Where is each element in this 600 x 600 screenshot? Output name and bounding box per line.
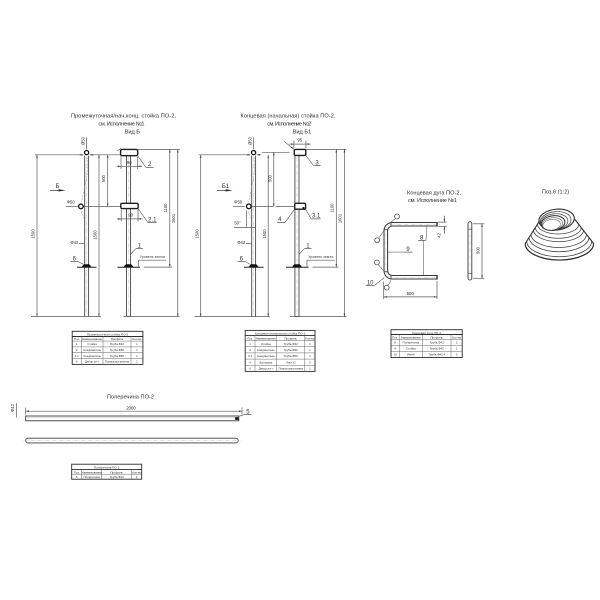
svg-text:Декор.эл-т: Декор.эл-т	[259, 367, 274, 371]
svg-text:Поз.: Поз.	[74, 470, 80, 474]
svg-text:Уровень земли: Уровень земли	[308, 255, 333, 259]
svg-text:Наименование: Наименование	[401, 336, 421, 340]
svg-text:Ф50: Ф50	[67, 200, 76, 205]
svg-text:Труба Ф42: Труба Ф42	[430, 341, 444, 345]
svg-text:Профиль: Профиль	[111, 337, 124, 341]
svg-text:1500: 1500	[194, 229, 199, 239]
svg-text:Поперечина ПО-2: Поперечина ПО-2	[94, 466, 120, 470]
svg-text:2.1: 2.1	[148, 217, 157, 223]
svg-text:Труба Ф42: Труба Ф42	[430, 347, 444, 351]
svg-text:1500: 1500	[31, 229, 36, 239]
svg-text:Поз.: Поз.	[74, 337, 80, 341]
svg-text:95: 95	[297, 138, 302, 143]
svg-text:Б1: Б1	[222, 184, 230, 190]
svg-text:Ф42: Ф42	[10, 403, 15, 412]
svg-text:Вид Б: Вид Б	[125, 130, 141, 136]
svg-text:3.1: 3.1	[312, 214, 321, 220]
svg-text:Труба Ф42: Труба Ф42	[110, 342, 124, 346]
svg-text:2.1: 2.1	[75, 354, 79, 358]
svg-text:Труба Ф50: Труба Ф50	[284, 354, 298, 358]
svg-text:3.1: 3.1	[248, 354, 252, 358]
svg-text:1100: 1100	[329, 203, 334, 213]
svg-text:1601: 1601	[338, 213, 343, 223]
svg-text:Труба Ф42.4: Труба Ф42.4	[428, 353, 445, 357]
svg-text:Вид Б1: Вид Б1	[293, 130, 311, 136]
svg-text:500: 500	[101, 174, 106, 182]
svg-text:Концевая (начальная) стойка ПО: Концевая (начальная) стойка ПО-2.	[241, 113, 336, 120]
svg-text:Труба Ф42: Труба Ф42	[284, 342, 298, 346]
svg-text:Труба Ф42: Труба Ф42	[110, 475, 124, 479]
svg-text:42: 42	[437, 233, 442, 238]
svg-text:Ø50: Ø50	[81, 136, 86, 145]
svg-text:1100: 1100	[163, 203, 168, 213]
svg-text:см. Исполнение №2: см. Исполнение №2	[267, 121, 311, 127]
svg-text:Ø50: Ø50	[248, 136, 253, 145]
svg-text:Кол-во: Кол-во	[132, 337, 141, 341]
svg-text:500: 500	[267, 174, 272, 182]
svg-text:Стойка: Стойка	[87, 342, 97, 346]
svg-text:2000: 2000	[126, 405, 136, 410]
svg-text:1500: 1500	[262, 229, 267, 239]
svg-text:см. Исполнение №1: см. Исполнение №1	[99, 121, 145, 127]
svg-text:Промежуточная стойка ПО-2: Промежуточная стойка ПО-2	[87, 333, 129, 337]
svg-text:90: 90	[128, 213, 133, 218]
svg-text:Декор.эл-т: Декор.эл-т	[85, 360, 100, 364]
svg-text:Покрышка-резина: Покрышка-резина	[105, 360, 130, 364]
svg-text:Соединитель: Соединитель	[257, 354, 275, 358]
svg-text:Покрышка-резина: Покрышка-резина	[279, 367, 304, 371]
svg-text:Ф42: Ф42	[237, 240, 246, 245]
svg-text:50°: 50°	[234, 220, 241, 225]
svg-text:Промежуточная/нач.конц. стойка: Промежуточная/нач.конц. стойка ПО-2.	[71, 113, 176, 120]
svg-text:Соединитель: Соединитель	[257, 348, 275, 352]
svg-text:Профиль: Профиль	[110, 470, 123, 474]
svg-text:Труба Ф50: Труба Ф50	[284, 348, 298, 352]
svg-text:Концевая дуга ПО-2.: Концевая дуга ПО-2.	[407, 191, 461, 197]
svg-text:Соединитель: Соединитель	[83, 348, 101, 352]
svg-text:Профиль: Профиль	[284, 337, 297, 341]
svg-text:500: 500	[475, 246, 480, 254]
svg-text:Поперечина ПО-2: Поперечина ПО-2	[107, 395, 154, 401]
svg-text:Ф50: Ф50	[234, 200, 243, 205]
svg-text:Наименование: Наименование	[82, 470, 102, 474]
svg-text:Лист t2: Лист t2	[286, 360, 296, 364]
svg-text:500: 500	[407, 291, 415, 296]
svg-text:1601: 1601	[171, 213, 176, 223]
svg-text:Уровень земли: Уровень земли	[140, 255, 165, 259]
svg-text:90: 90	[127, 160, 132, 165]
svg-text:Ф42: Ф42	[70, 240, 79, 245]
svg-text:Наименование: Наименование	[256, 337, 276, 341]
svg-text:Кол-во: Кол-во	[452, 336, 461, 340]
svg-text:Кол-во: Кол-во	[305, 337, 314, 341]
svg-text:см. Исполнение №1: см. Исполнение №1	[408, 198, 457, 204]
svg-text:Соединитель: Соединитель	[83, 354, 101, 358]
svg-text:Заглушка: Заглушка	[259, 360, 272, 364]
svg-text:Поз.: Поз.	[247, 337, 253, 341]
svg-text:Изгиб: Изгиб	[407, 353, 415, 357]
svg-text:Б: Б	[56, 184, 60, 190]
svg-text:Стойка: Стойка	[261, 342, 271, 346]
svg-text:Профиль: Профиль	[430, 336, 443, 340]
svg-text:Концевая дуга ПО-2: Концевая дуга ПО-2	[412, 331, 441, 335]
svg-text:Труба Ф50: Труба Ф50	[110, 354, 124, 358]
svg-text:Наименование: Наименование	[82, 337, 102, 341]
svg-text:Поперечина: Поперечина	[403, 341, 420, 345]
svg-text:Кол-во: Кол-во	[132, 470, 141, 474]
svg-text:Поз.: Поз.	[392, 336, 398, 340]
svg-text:Труба Ф50: Труба Ф50	[110, 348, 124, 352]
svg-text:Поперечина: Поперечина	[84, 475, 101, 479]
svg-text:10: 10	[393, 353, 397, 357]
svg-text:Поз.6 (1:2): Поз.6 (1:2)	[542, 190, 569, 196]
svg-text:Стойка: Стойка	[406, 347, 416, 351]
svg-text:Концевая (начальная) стойка ПО: Концевая (начальная) стойка ПО-2	[255, 332, 306, 336]
svg-text:1500: 1500	[93, 230, 98, 240]
